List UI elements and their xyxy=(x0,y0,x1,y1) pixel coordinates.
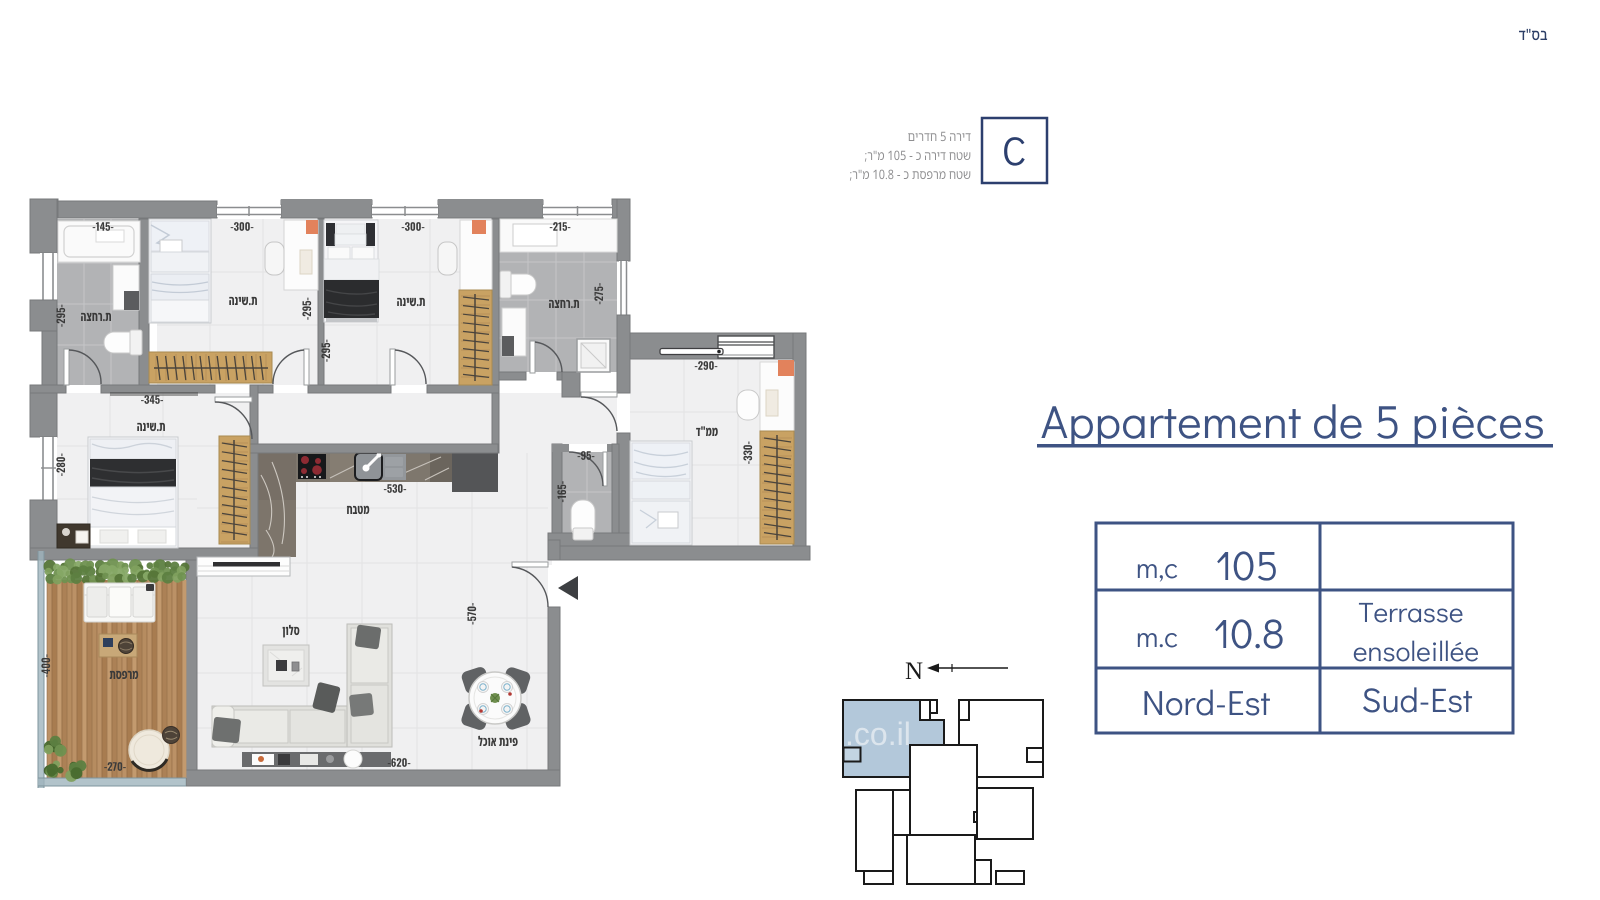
svg-text:N: N xyxy=(905,658,923,685)
svg-text:.co.il: .co.il xyxy=(845,716,911,752)
